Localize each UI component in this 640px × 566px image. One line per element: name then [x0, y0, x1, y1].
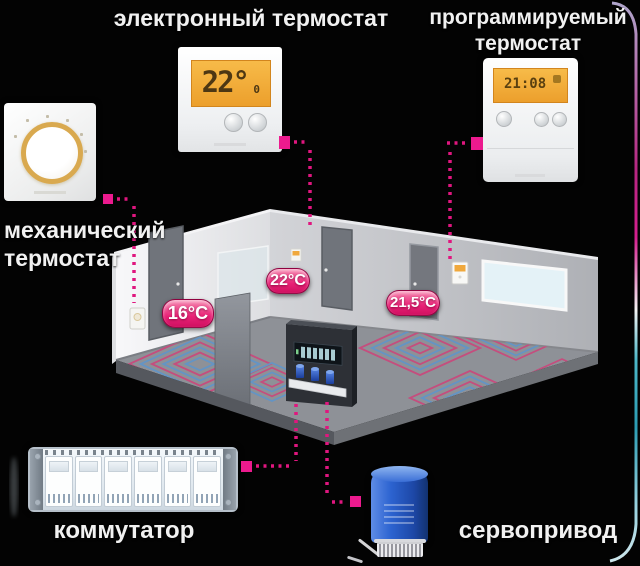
- dial-tick: [84, 150, 87, 153]
- servo-dome: [371, 466, 428, 482]
- thermostat-button: [224, 113, 243, 132]
- commutator-module: [193, 456, 221, 507]
- servo-label-line: [384, 522, 414, 524]
- programmable-thermostat-photo: 21:08: [483, 58, 578, 182]
- label-mechanical-thermostat: механический термостат: [4, 216, 204, 272]
- commutator-modules: [43, 449, 223, 510]
- servo-label-line: [384, 504, 414, 506]
- infographic-stage: 22° 0 21:08: [0, 0, 640, 566]
- label-programmable-thermostat: программируемый термостат: [421, 5, 635, 56]
- label-commutator: коммутатор: [18, 516, 230, 545]
- brand-mark: [515, 174, 545, 177]
- dial-tick: [14, 135, 17, 138]
- label-servo: сервопривод: [448, 516, 628, 545]
- thermostat-dial: [21, 122, 83, 184]
- lcd-mode-icon: [553, 75, 561, 83]
- temperature-badge-right-room: 21,5°C: [386, 290, 440, 316]
- manifold-valve: [326, 370, 334, 384]
- brand-mark: [214, 143, 246, 146]
- thermostat-button: [248, 113, 267, 132]
- lcd-temperature-value: 22°: [202, 65, 248, 99]
- lcd-display: 22° 0: [191, 60, 271, 107]
- servo-label-line: [384, 516, 414, 518]
- cover-seam: [487, 148, 574, 149]
- servo-threaded-base: [377, 542, 423, 557]
- dial-tick: [46, 115, 49, 118]
- screw: [225, 499, 232, 506]
- mechanical-thermostat-photo: [4, 103, 96, 201]
- dial-tick: [80, 133, 83, 136]
- door-handle: [176, 282, 179, 285]
- temperature-badge-middle-room: 22°C: [266, 268, 310, 294]
- screw: [34, 453, 41, 460]
- commutator-module: [75, 456, 103, 507]
- commutator-module: [164, 456, 192, 507]
- lcd-sub-digit: 0: [253, 83, 260, 96]
- screw: [34, 499, 41, 506]
- thermostat-button: [534, 112, 549, 127]
- window-right-room: [483, 261, 566, 310]
- door-handle: [413, 282, 416, 285]
- lcd-display: 21:08: [493, 68, 568, 103]
- thermostat-button: [496, 111, 512, 127]
- interior-partition-wall: [215, 293, 250, 408]
- commutator-photo: [28, 447, 238, 512]
- thermostat-button: [552, 112, 567, 127]
- commutator-module: [45, 456, 73, 507]
- manifold-valve: [296, 364, 304, 378]
- temperature-badge-left-room: 16°C: [162, 299, 214, 328]
- servo-label-line: [384, 510, 414, 512]
- commutator-module: [134, 456, 162, 507]
- wall-thermostat-middle: [291, 249, 301, 261]
- label-electronic-thermostat: электронный термостат: [60, 4, 442, 32]
- terminal-rail: [45, 450, 221, 455]
- dial-tick: [66, 119, 69, 122]
- label-line: термостат: [4, 244, 204, 272]
- dial-tick: [26, 119, 29, 122]
- wall-thermostat-right: [452, 262, 468, 284]
- commutator-module: [104, 456, 132, 507]
- manifold-cabinet: [286, 320, 357, 407]
- wall-switch-left: [130, 308, 145, 329]
- lcd-time-value: 21:08: [504, 76, 546, 92]
- brand-mark: [34, 191, 66, 194]
- manifold-display: [294, 342, 342, 365]
- manifold-valve: [311, 367, 319, 381]
- screw: [225, 453, 232, 460]
- servo-actuator-photo: [368, 462, 434, 558]
- label-line: механический: [4, 216, 204, 244]
- electronic-thermostat-photo: 22° 0: [178, 47, 282, 152]
- door-handle: [324, 268, 327, 271]
- label-line: термостат: [421, 31, 635, 57]
- label-line: программируемый: [421, 5, 635, 31]
